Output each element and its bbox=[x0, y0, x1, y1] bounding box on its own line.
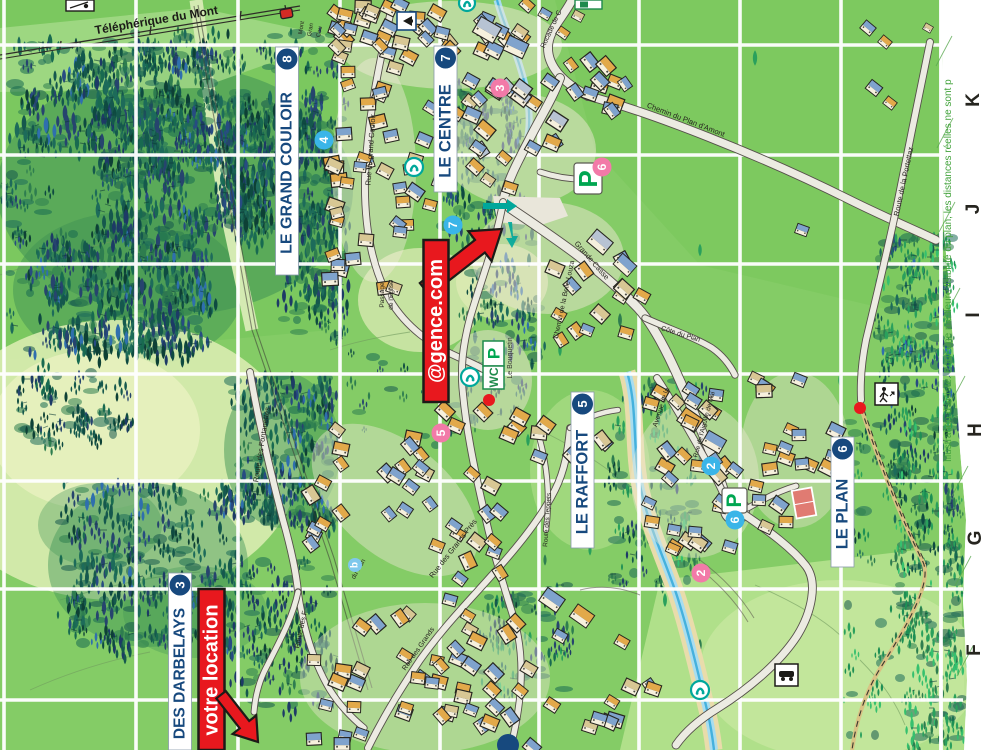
svg-text:I: I bbox=[963, 312, 984, 317]
svg-text:b: b bbox=[350, 562, 361, 568]
svg-text:3: 3 bbox=[493, 84, 507, 91]
svg-text:7: 7 bbox=[446, 221, 460, 228]
svg-text:7: 7 bbox=[438, 54, 453, 61]
svg-text:G: G bbox=[965, 531, 986, 546]
svg-text:P: P bbox=[485, 348, 504, 359]
svg-text:F: F bbox=[964, 644, 985, 656]
svg-text:4: 4 bbox=[317, 136, 331, 143]
svg-text:LE CENTRE: LE CENTRE bbox=[437, 84, 455, 178]
svg-text:votre location: votre location bbox=[201, 604, 223, 735]
svg-text:Le Bouquetin: Le Bouquetin bbox=[507, 337, 514, 378]
svg-text:Passage: Passage bbox=[379, 282, 386, 308]
svg-text:DES DARBELAYS: DES DARBELAYS bbox=[172, 608, 189, 739]
svg-text:5: 5 bbox=[434, 429, 448, 436]
svg-text:8: 8 bbox=[280, 55, 295, 62]
svg-text:P: P bbox=[723, 493, 746, 507]
svg-text:6: 6 bbox=[835, 445, 850, 452]
svg-text:LE RAFFORT: LE RAFFORT bbox=[574, 430, 592, 535]
svg-text:LE PLAN: LE PLAN bbox=[834, 479, 852, 550]
svg-text:@gence.com: @gence.com bbox=[425, 259, 447, 383]
svg-text:3: 3 bbox=[173, 581, 188, 588]
svg-text:LE GRAND COULOIR: LE GRAND COULOIR bbox=[279, 92, 296, 254]
svg-text:WC: WC bbox=[487, 367, 501, 387]
svg-text:H: H bbox=[965, 423, 986, 437]
svg-text:de l'Eglise: de l'Eglise bbox=[388, 280, 395, 310]
svg-text:2: 2 bbox=[694, 569, 708, 576]
svg-text:K: K bbox=[963, 93, 984, 107]
svg-text:6: 6 bbox=[728, 516, 742, 523]
svg-text:Illustration d'artiste. Pour u: Illustration d'artiste. Pour une meilleu… bbox=[943, 79, 954, 462]
svg-text:5: 5 bbox=[575, 400, 590, 407]
svg-text:J: J bbox=[963, 204, 984, 215]
svg-text:6: 6 bbox=[595, 163, 609, 170]
svg-text:2: 2 bbox=[704, 462, 718, 469]
